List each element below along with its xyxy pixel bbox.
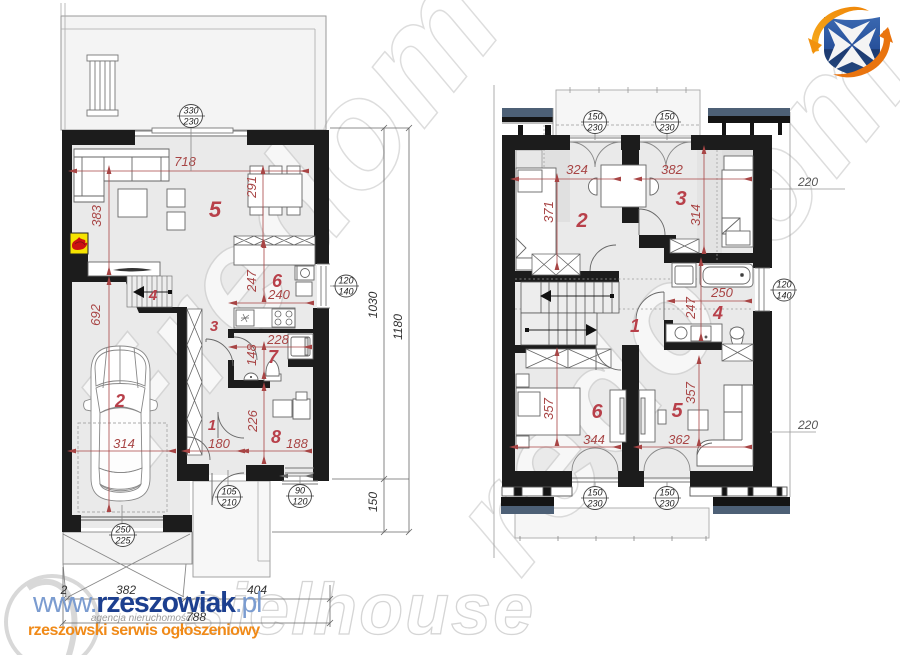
svg-text:www.rzeszowiak.pl: www.rzeszowiak.pl xyxy=(32,587,261,619)
svg-text:314: 314 xyxy=(113,436,135,451)
svg-text:247: 247 xyxy=(244,269,259,292)
svg-text:357: 357 xyxy=(541,397,556,419)
svg-text:rzeszowski serwis ogłoszeniowy: rzeszowski serwis ogłoszeniowy xyxy=(28,622,260,639)
svg-text:324: 324 xyxy=(566,162,588,177)
svg-text:230: 230 xyxy=(658,123,674,133)
svg-text:150: 150 xyxy=(659,488,674,498)
svg-text:5: 5 xyxy=(209,197,222,222)
svg-text:228: 228 xyxy=(266,332,289,347)
svg-text:718: 718 xyxy=(174,154,196,169)
svg-text:250: 250 xyxy=(710,285,733,300)
svg-text:692: 692 xyxy=(88,303,103,325)
svg-text:383: 383 xyxy=(89,204,104,226)
svg-text:105: 105 xyxy=(221,487,237,497)
svg-text:5: 5 xyxy=(671,400,683,422)
svg-text:150: 150 xyxy=(587,488,602,498)
svg-text:314: 314 xyxy=(688,204,703,226)
svg-text:250: 250 xyxy=(114,525,130,535)
svg-text:188: 188 xyxy=(286,436,308,451)
svg-text:148: 148 xyxy=(244,343,259,365)
svg-text:362: 362 xyxy=(668,432,690,447)
svg-text:344: 344 xyxy=(583,432,605,447)
svg-text:371: 371 xyxy=(541,201,556,223)
svg-text:230: 230 xyxy=(586,123,602,133)
svg-text:220: 220 xyxy=(797,175,818,189)
svg-text:220: 220 xyxy=(797,418,818,432)
svg-text:150: 150 xyxy=(587,112,602,122)
svg-text:140: 140 xyxy=(338,287,353,297)
svg-text:150: 150 xyxy=(659,112,674,122)
svg-text:2: 2 xyxy=(575,210,587,232)
svg-text:6: 6 xyxy=(272,271,283,291)
svg-text:247: 247 xyxy=(683,296,698,319)
svg-text:150: 150 xyxy=(366,492,380,512)
svg-text:210: 210 xyxy=(220,498,236,508)
svg-text:6: 6 xyxy=(591,401,603,423)
svg-text:180: 180 xyxy=(208,436,230,451)
svg-text:120: 120 xyxy=(338,276,353,286)
svg-text:2: 2 xyxy=(114,391,125,411)
svg-text:382: 382 xyxy=(661,162,683,177)
svg-text:90: 90 xyxy=(295,486,305,496)
svg-text:8: 8 xyxy=(271,427,281,447)
svg-text:357: 357 xyxy=(683,381,698,403)
svg-text:230: 230 xyxy=(182,117,198,127)
svg-text:1: 1 xyxy=(630,316,640,336)
svg-text:1180: 1180 xyxy=(391,314,405,340)
svg-text:226: 226 xyxy=(245,409,260,432)
svg-text:291: 291 xyxy=(244,176,259,199)
svg-text:120: 120 xyxy=(776,280,791,290)
svg-text:230: 230 xyxy=(586,499,602,509)
svg-text:330: 330 xyxy=(183,106,198,116)
svg-text:3: 3 xyxy=(675,188,686,210)
svg-text:4: 4 xyxy=(712,303,723,323)
svg-text:3: 3 xyxy=(210,318,219,335)
svg-text:230: 230 xyxy=(658,499,674,509)
svg-text:140: 140 xyxy=(776,291,791,301)
svg-text:120: 120 xyxy=(292,497,307,507)
svg-text:1030: 1030 xyxy=(366,291,380,318)
svg-text:4: 4 xyxy=(148,287,158,304)
svg-text:1: 1 xyxy=(208,417,216,434)
svg-text:225: 225 xyxy=(114,536,131,546)
svg-text:7: 7 xyxy=(268,347,279,367)
